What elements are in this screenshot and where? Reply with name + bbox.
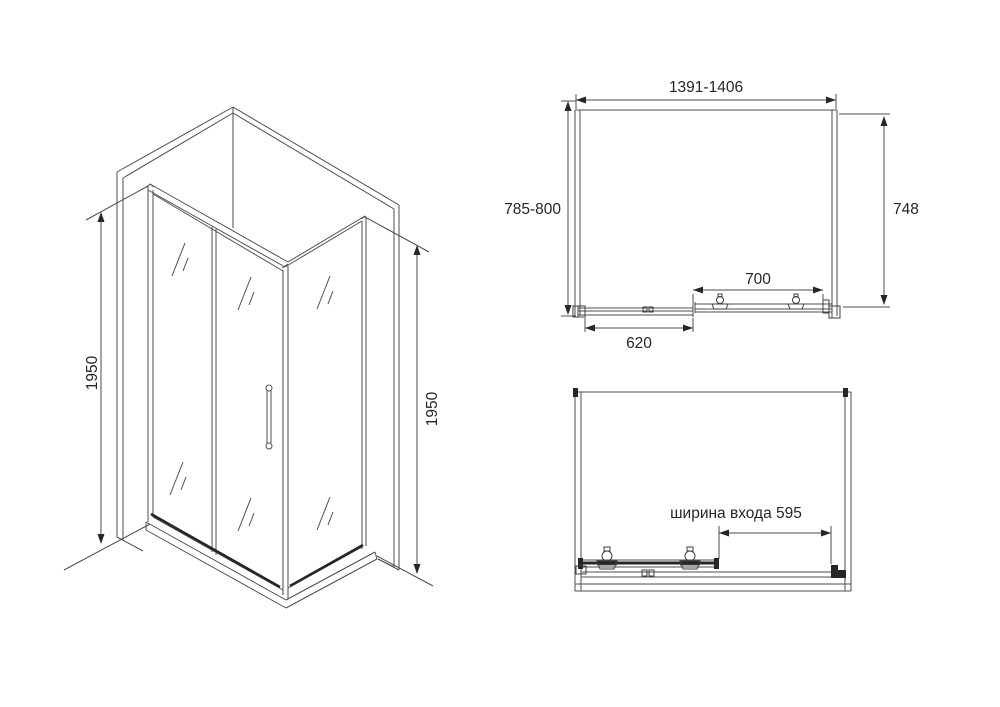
plan-sliding-door-rail	[695, 294, 840, 318]
plan-door-dimension: 700	[693, 271, 823, 306]
plan-depth-dimension-left: 785-800	[504, 101, 576, 316]
open-view: ширина входа 595	[573, 388, 851, 591]
shine-mark	[238, 277, 254, 310]
roller-icon	[712, 294, 728, 309]
entrance-width-label: ширина входа 595	[670, 505, 802, 522]
back-walls	[117, 107, 399, 570]
iso-view: 1950 1950	[64, 107, 441, 608]
open-sliding-door	[576, 547, 846, 578]
plan-width-dimension: 1391-1406	[576, 79, 836, 109]
plan-fixed-dimension: 620	[585, 318, 693, 352]
entrance-dimension: ширина входа 595	[670, 505, 831, 564]
roller-icon	[597, 547, 617, 569]
plan-glass-depth-label: 748	[893, 201, 919, 218]
height-left-label: 1950	[84, 355, 101, 390]
glass-shine-marks	[170, 243, 333, 531]
shine-mark	[317, 276, 333, 309]
roller-icon	[788, 294, 804, 309]
height-dimension-left: 1950	[64, 186, 150, 570]
shower-enclosure-drawing: 1950 1950	[0, 0, 1000, 707]
shower-frame	[147, 184, 366, 599]
plan-width-label: 1391-1406	[669, 79, 743, 96]
plan-view: 1391-1406 785-800 748 700	[504, 79, 919, 352]
base-tray	[146, 514, 377, 608]
plan-outline	[573, 110, 837, 317]
plan-door-label: 700	[745, 271, 771, 288]
plan-depth-label: 785-800	[504, 201, 561, 218]
height-right-label: 1950	[424, 391, 441, 426]
shine-mark	[317, 497, 333, 530]
plan-depth-dimension-right: 748	[839, 114, 919, 307]
door-handle-icon	[266, 385, 272, 449]
shine-mark	[170, 462, 186, 495]
shine-mark	[238, 498, 254, 531]
plan-fixed-label: 620	[626, 335, 652, 352]
technical-drawing-page: 1950 1950	[0, 0, 1000, 707]
roller-icon	[680, 547, 700, 569]
height-dimension-right: 1950	[365, 217, 441, 586]
plan-fixed-panel-rail	[578, 304, 693, 317]
shine-mark	[172, 243, 188, 276]
